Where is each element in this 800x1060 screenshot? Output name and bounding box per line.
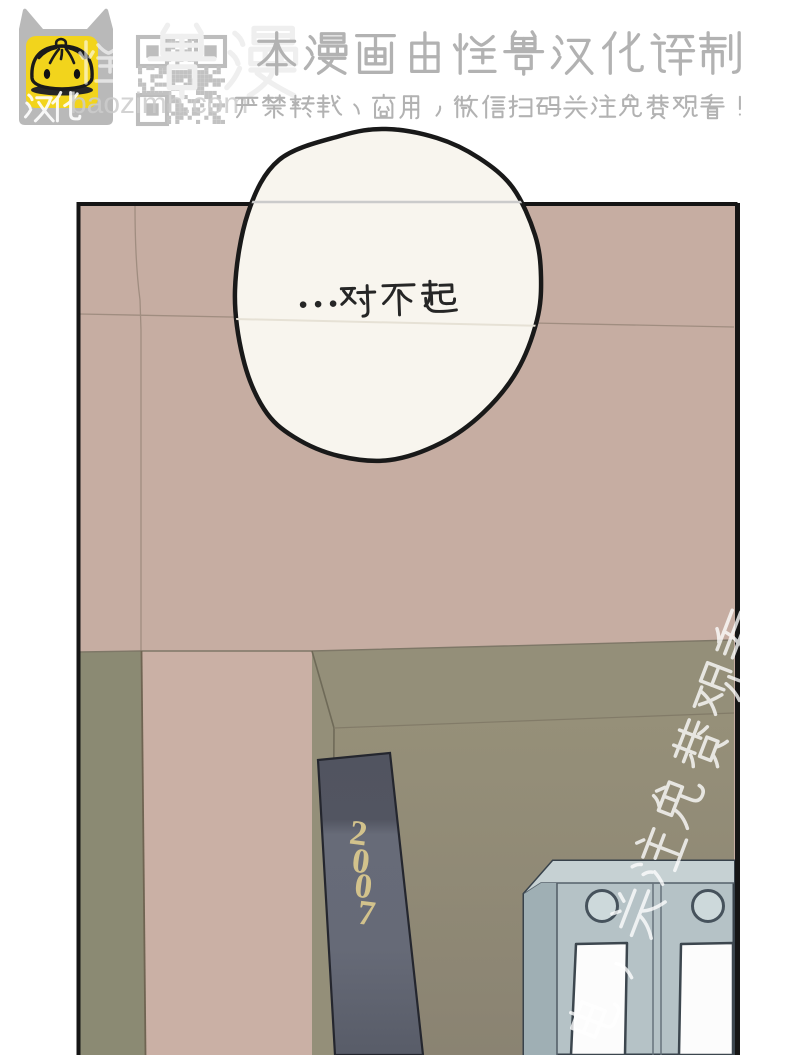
svg-text:baozimh.com: baozimh.com xyxy=(70,87,248,120)
